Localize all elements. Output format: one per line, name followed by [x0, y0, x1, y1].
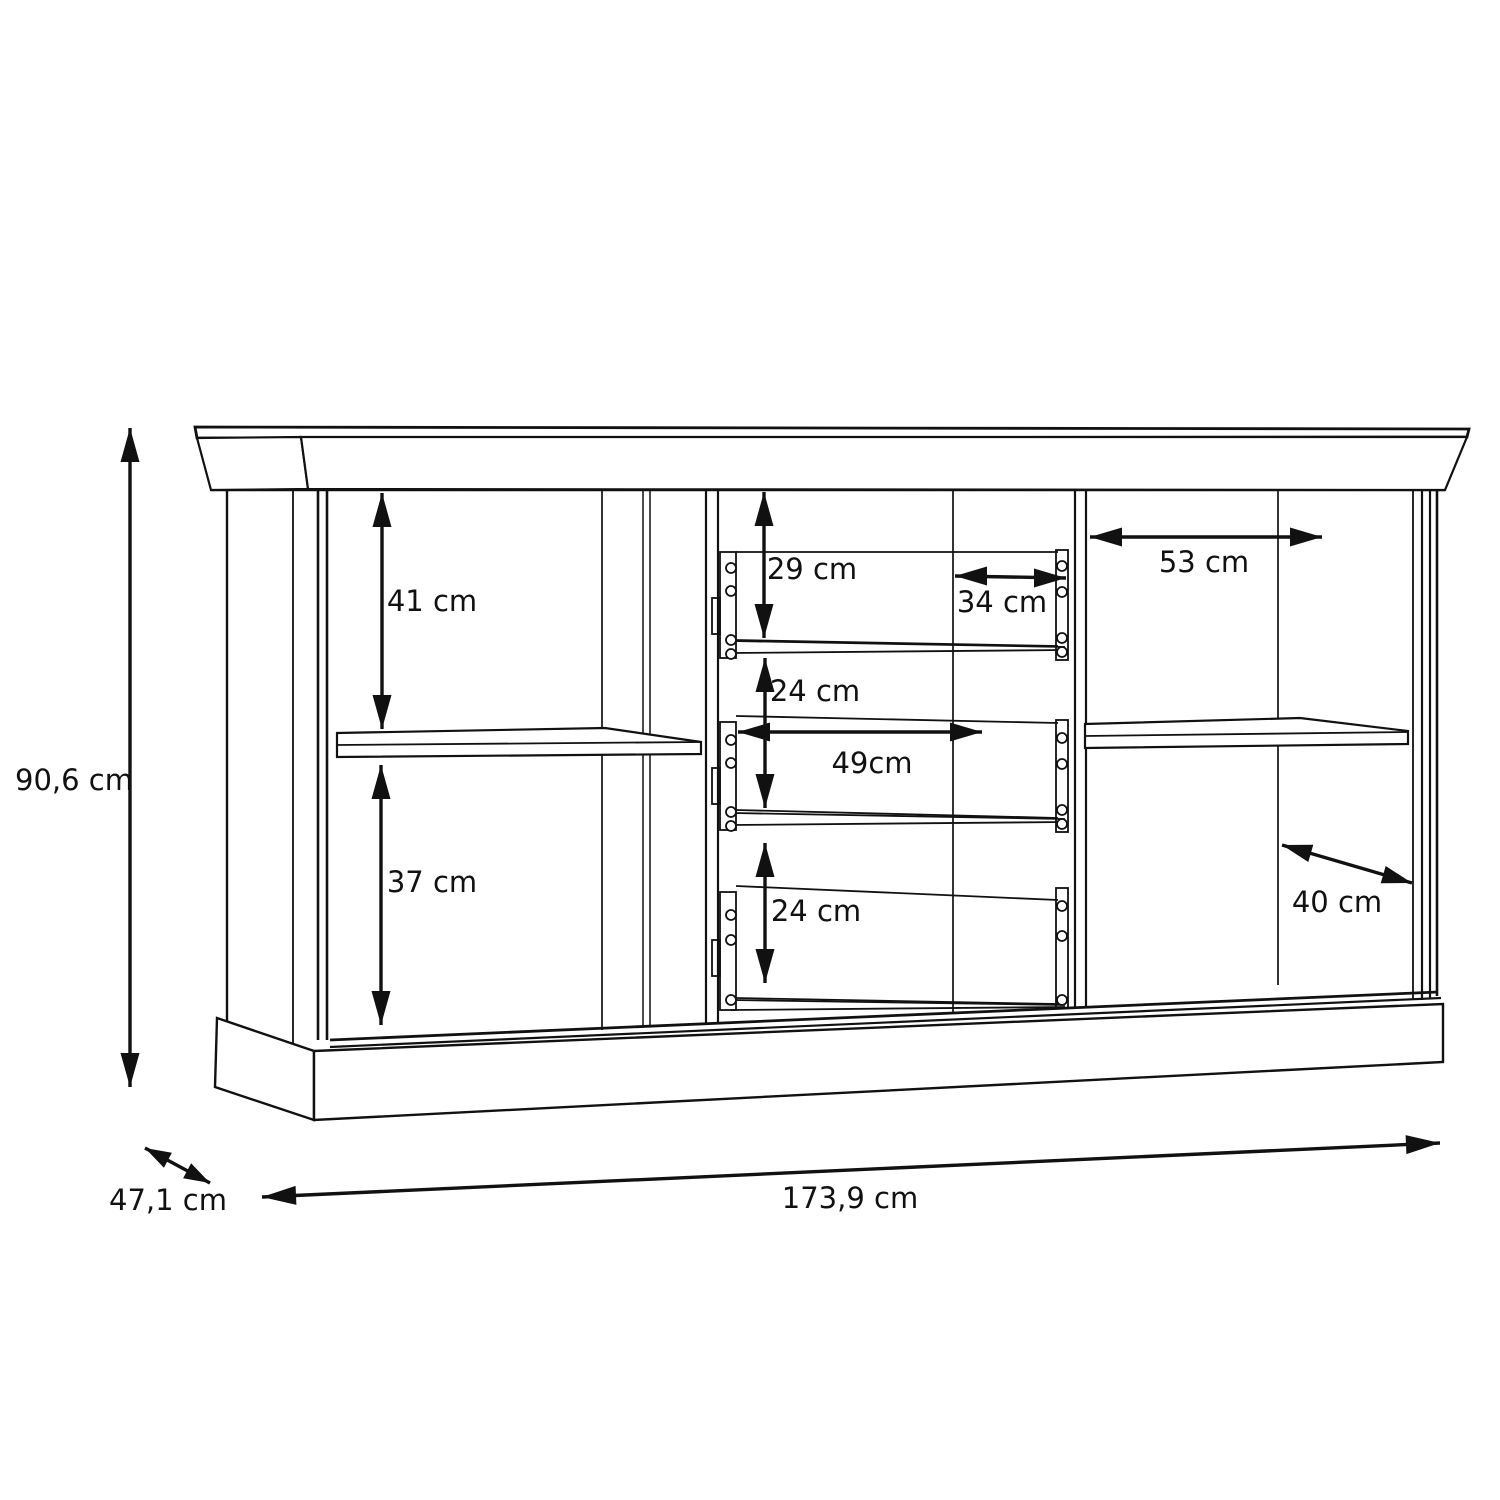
sideboard-technical-drawing: 90,6 cm 41 cm 37 cm 29 cm 24 cm 24 cm 34…: [0, 0, 1500, 1500]
plinth-left-face: [215, 1018, 314, 1120]
plinth-front-face: [314, 1004, 1443, 1120]
right-width-arrow: [1090, 528, 1322, 547]
dimension-labels: 90,6 cm 41 cm 37 cm 29 cm 24 cm 24 cm 34…: [15, 545, 1382, 1217]
cornice: [195, 427, 1469, 490]
cornice-left-face: [197, 437, 308, 490]
depth-dimension-label: 47,1 cm: [109, 1183, 227, 1217]
height-dimension-arrow: [121, 428, 140, 1087]
plinth: [215, 1004, 1443, 1120]
left-shelf: [337, 728, 701, 757]
top-drawer-height-label: 29 cm: [767, 552, 857, 586]
furniture-dimension-diagram: 90,6 cm 41 cm 37 cm 29 cm 24 cm 24 cm 34…: [0, 0, 1500, 1500]
right-shelf: [1085, 718, 1408, 748]
drawer-slide-rail: [720, 892, 736, 1010]
drawer-width-arrow: [738, 723, 982, 742]
drawer-width-label: 49cm: [831, 746, 912, 780]
height-dimension-label: 90,6 cm: [15, 763, 133, 797]
left-lower-height-label: 37 cm: [387, 865, 477, 899]
left-upper-height-label: 41 cm: [387, 584, 477, 618]
bottom-drawer-height-label: 24 cm: [771, 894, 861, 928]
width-dimension-label: 173,9 cm: [782, 1181, 918, 1215]
right-depth-arrow: [1282, 845, 1412, 883]
cornice-front-face: [301, 437, 1467, 490]
depth-dimension-arrow: [145, 1148, 210, 1183]
middle-drawer-height-label: 24 cm: [770, 674, 860, 708]
drawer-depth-label: 34 cm: [957, 585, 1047, 619]
right-width-label: 53 cm: [1159, 545, 1249, 579]
right-depth-label: 40 cm: [1292, 885, 1382, 919]
